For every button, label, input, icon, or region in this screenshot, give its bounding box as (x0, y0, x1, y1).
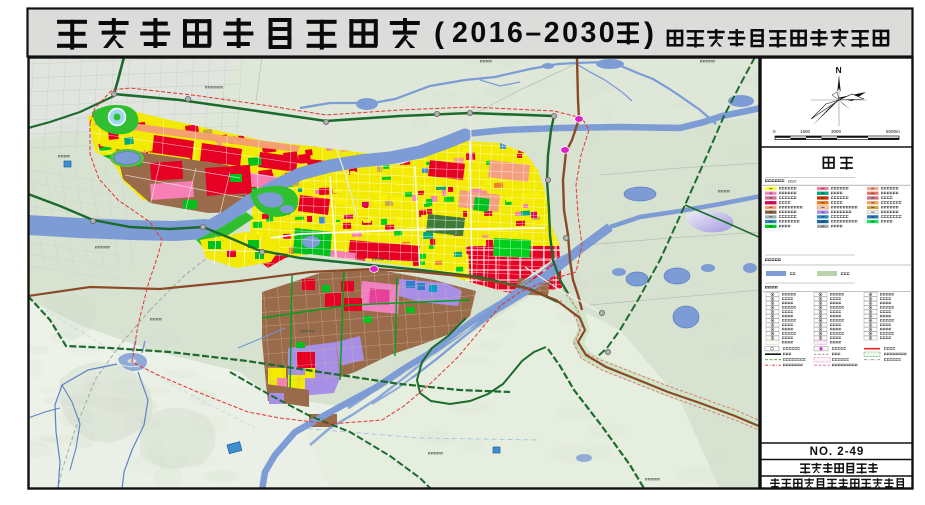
svg-text:2016–2030: 2016–2030 (452, 17, 617, 49)
svg-text:NO. 2-49: NO. 2-49 (810, 446, 865, 458)
svg-text:): ) (644, 17, 654, 50)
svg-text:1500: 1500 (800, 129, 811, 134)
svg-text:(: ( (434, 17, 444, 50)
svg-text:N: N (836, 65, 842, 75)
svg-text:3000: 3000 (831, 129, 842, 134)
svg-text:6000m: 6000m (886, 129, 900, 134)
